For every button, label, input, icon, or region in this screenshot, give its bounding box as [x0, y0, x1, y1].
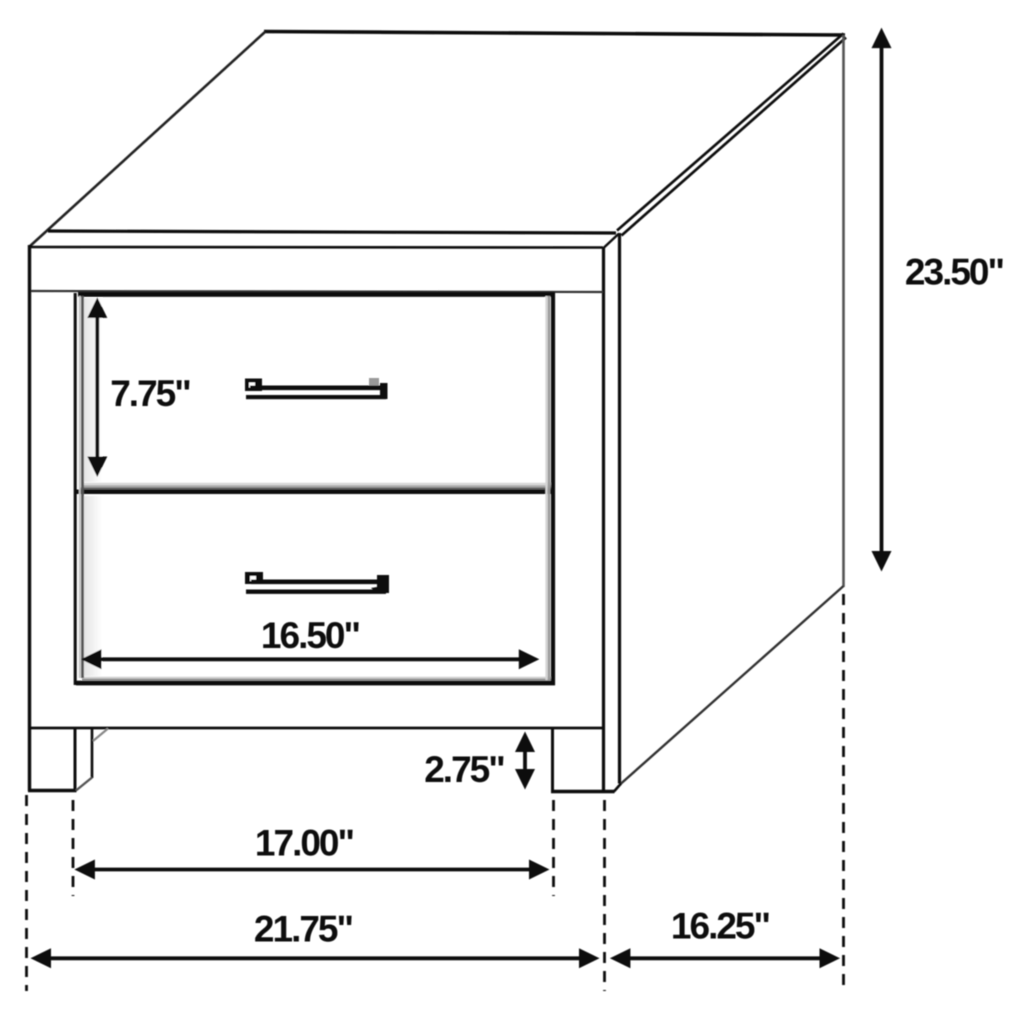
- svg-text:2.75": 2.75": [424, 749, 504, 790]
- svg-text:17.00": 17.00": [255, 823, 354, 864]
- svg-text:16.50": 16.50": [261, 615, 360, 656]
- svg-text:7.75": 7.75": [110, 373, 190, 414]
- svg-text:21.75": 21.75": [254, 909, 353, 950]
- svg-text:16.25": 16.25": [671, 906, 770, 947]
- svg-text:23.50": 23.50": [905, 252, 1004, 293]
